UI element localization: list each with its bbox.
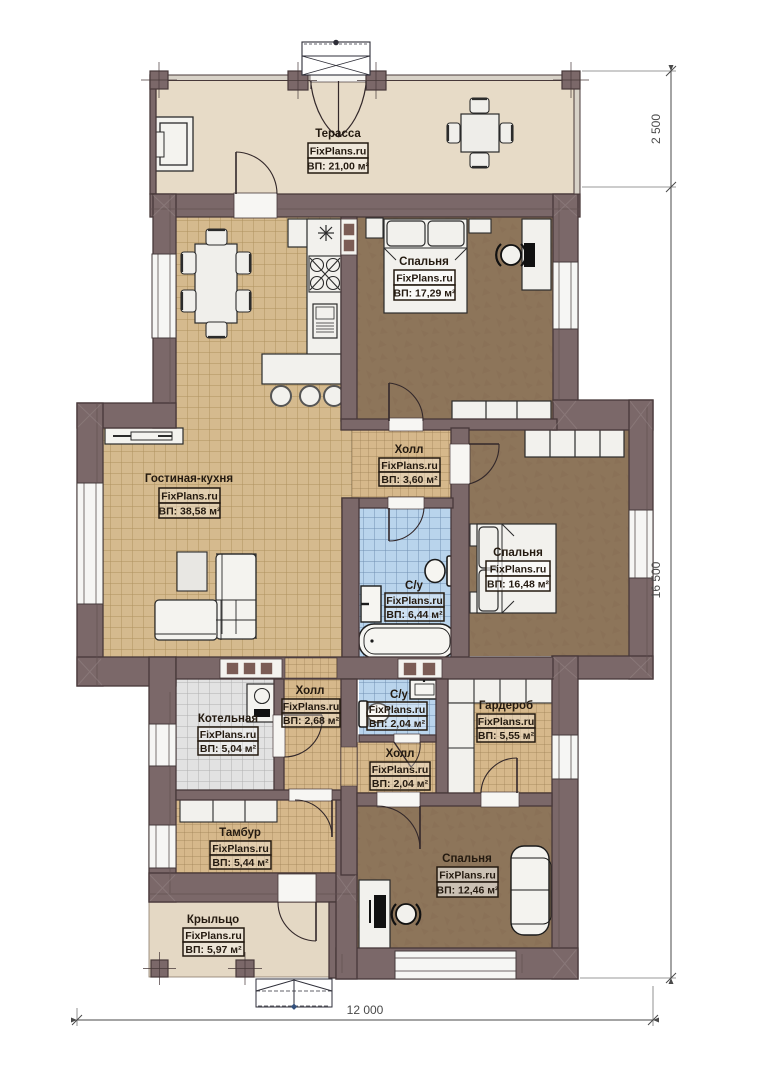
svg-text:ВП: 2,68 м²: ВП: 2,68 м² (283, 715, 340, 727)
svg-text:С/у: С/у (390, 689, 409, 701)
svg-text:ВП: 12,46 м²: ВП: 12,46 м² (436, 885, 499, 897)
svg-text:ВП: 21,00 м²: ВП: 21,00 м² (307, 161, 370, 173)
svg-text:ВП: 6,44 м²: ВП: 6,44 м² (386, 609, 443, 621)
svg-text:ВП: 16,48 м²: ВП: 16,48 м² (487, 579, 550, 591)
svg-text:2 500: 2 500 (649, 114, 663, 144)
svg-text:ВП: 5,44 м²: ВП: 5,44 м² (212, 857, 269, 869)
svg-text:FixPlans.ru: FixPlans.ru (396, 273, 453, 285)
svg-text:Котельная: Котельная (198, 713, 258, 725)
svg-text:Крыльцо: Крыльцо (187, 914, 239, 926)
svg-text:FixPlans.ru: FixPlans.ru (283, 701, 340, 713)
svg-text:FixPlans.ru: FixPlans.ru (490, 564, 547, 576)
svg-text:Гостиная-кухня: Гостиная-кухня (145, 473, 233, 485)
svg-text:ВП: 5,55 м²: ВП: 5,55 м² (478, 730, 535, 742)
svg-text:Спальня: Спальня (399, 256, 449, 268)
svg-text:Гардероб: Гардероб (479, 700, 533, 712)
svg-text:FixPlans.ru: FixPlans.ru (478, 716, 535, 728)
svg-text:Спальня: Спальня (442, 853, 492, 865)
svg-text:ВП: 2,04 м²: ВП: 2,04 м² (369, 718, 426, 730)
svg-text:FixPlans.ru: FixPlans.ru (310, 146, 367, 158)
svg-text:Спальня: Спальня (493, 547, 543, 559)
svg-text:FixPlans.ru: FixPlans.ru (161, 491, 218, 503)
svg-text:Холл: Холл (296, 685, 325, 697)
svg-text:16 500: 16 500 (649, 561, 663, 598)
svg-text:Тамбур: Тамбур (219, 827, 261, 839)
svg-text:FixPlans.ru: FixPlans.ru (439, 870, 496, 882)
svg-text:FixPlans.ru: FixPlans.ru (212, 843, 269, 855)
svg-text:FixPlans.ru: FixPlans.ru (369, 704, 426, 716)
svg-text:ВП: 3,60 м²: ВП: 3,60 м² (381, 474, 438, 486)
svg-text:ВП: 38,58 м²: ВП: 38,58 м² (158, 506, 221, 518)
svg-text:Терасса: Терасса (315, 128, 361, 140)
svg-text:FixPlans.ru: FixPlans.ru (386, 595, 443, 607)
svg-text:FixPlans.ru: FixPlans.ru (381, 460, 438, 472)
svg-text:Холл: Холл (395, 444, 424, 456)
svg-text:Холл: Холл (386, 748, 415, 760)
svg-text:FixPlans.ru: FixPlans.ru (200, 729, 257, 741)
svg-text:ВП: 2,04 м²: ВП: 2,04 м² (372, 778, 429, 790)
svg-text:ВП: 5,97 м²: ВП: 5,97 м² (185, 944, 242, 956)
svg-text:ВП: 17,29 м²: ВП: 17,29 м² (393, 288, 456, 300)
svg-text:ВП: 5,04 м²: ВП: 5,04 м² (200, 743, 257, 755)
svg-text:FixPlans.ru: FixPlans.ru (185, 930, 242, 942)
svg-text:С/у: С/у (405, 580, 424, 592)
svg-text:FixPlans.ru: FixPlans.ru (372, 764, 429, 776)
svg-text:12 000: 12 000 (347, 1003, 384, 1017)
